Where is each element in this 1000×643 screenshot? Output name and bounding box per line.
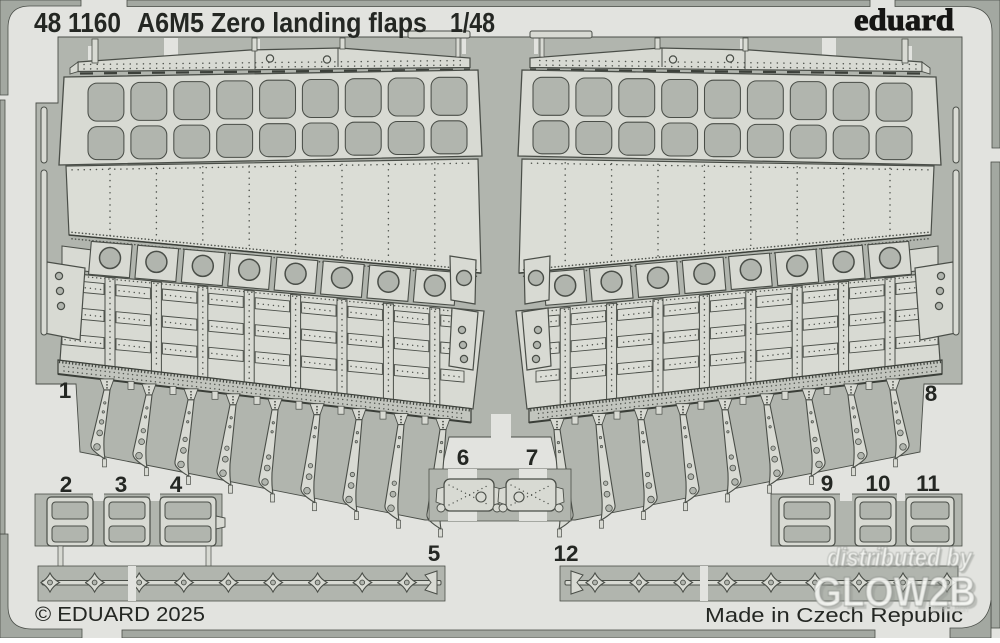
svg-text:8: 8: [925, 381, 938, 406]
svg-text:distribution: distribution: [930, 605, 969, 614]
svg-text:2: 2: [60, 472, 73, 497]
svg-text:© EDUARD 2025: © EDUARD 2025: [35, 604, 205, 626]
svg-text:5: 5: [428, 541, 441, 566]
svg-text:9: 9: [821, 471, 834, 496]
svg-text:eduard: eduard: [854, 2, 954, 37]
svg-text:7: 7: [526, 445, 539, 470]
svg-text:1/48: 1/48: [450, 7, 495, 38]
svg-text:4: 4: [170, 472, 183, 497]
svg-text:48 1160: 48 1160: [34, 7, 121, 38]
svg-text:12: 12: [553, 541, 578, 566]
svg-text:A6M5 Zero landing flaps: A6M5 Zero landing flaps: [137, 7, 427, 38]
svg-text:1: 1: [59, 378, 72, 403]
svg-text:11: 11: [916, 471, 940, 496]
svg-text:10: 10: [865, 471, 890, 496]
svg-text:3: 3: [115, 472, 128, 497]
svg-text:6: 6: [457, 445, 470, 470]
